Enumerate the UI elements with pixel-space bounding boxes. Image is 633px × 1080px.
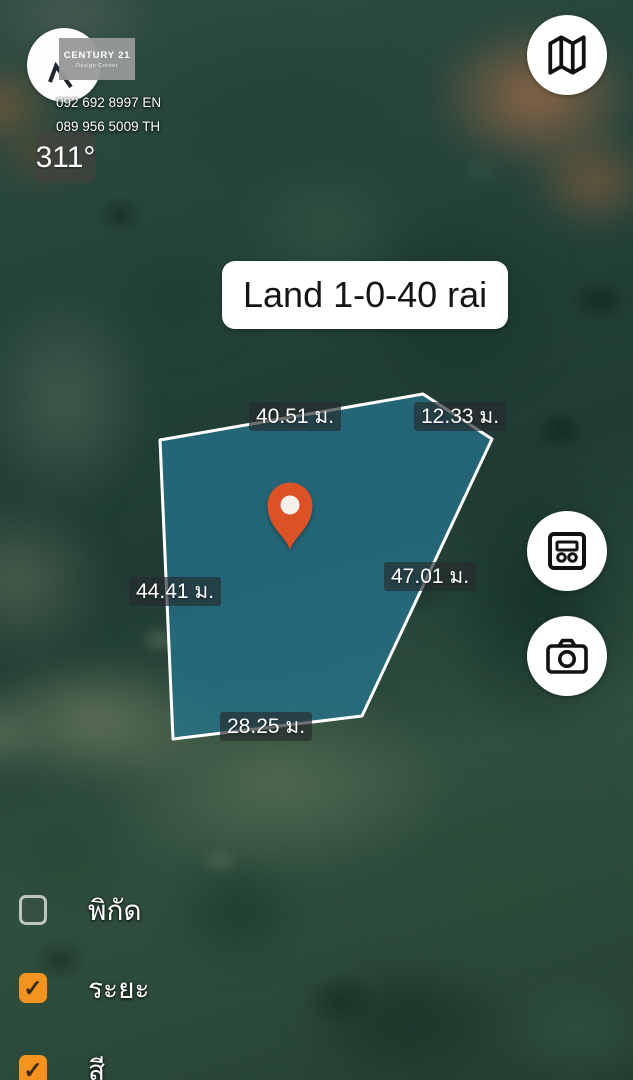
folded-map-icon xyxy=(544,32,590,78)
measurement-right: 47.01 ม. xyxy=(384,562,476,591)
century21-logo: CENTURY 21 Design Corner xyxy=(59,38,135,80)
measurement-left: 44.41 ม. xyxy=(129,577,221,606)
color-label: สี xyxy=(88,1054,105,1080)
toggle-row-color[interactable]: ✓ สี xyxy=(0,1055,260,1080)
measurement-top: 40.51 ม. xyxy=(249,402,341,431)
distance-checkbox[interactable]: ✓ xyxy=(19,973,47,1003)
measurement-top-right: 12.33 ม. xyxy=(414,402,506,431)
toggle-row-coordinates[interactable]: พิกัด xyxy=(0,895,260,931)
camera-button[interactable] xyxy=(527,616,607,696)
compass-heading-readout[interactable]: 311° xyxy=(35,132,96,183)
coordinates-checkbox[interactable] xyxy=(19,895,47,925)
toggle-row-distance[interactable]: ✓ ระยะ xyxy=(0,973,260,1009)
logo-subtitle: Design Corner xyxy=(76,63,118,69)
logo-title: CENTURY 21 xyxy=(64,50,131,61)
plot-details-button[interactable] xyxy=(527,511,607,591)
color-checkbox[interactable]: ✓ xyxy=(19,1055,47,1080)
check-icon: ✓ xyxy=(23,1059,42,1080)
measurement-bottom: 28.25 ม. xyxy=(220,712,312,741)
coordinates-label: พิกัด xyxy=(88,894,142,928)
detail-card-icon xyxy=(545,529,589,573)
check-icon: ✓ xyxy=(23,977,42,1000)
location-pin-icon[interactable] xyxy=(262,478,318,554)
map-type-button[interactable] xyxy=(527,15,607,95)
land-title-label[interactable]: Land 1-0-40 rai xyxy=(222,261,508,329)
distance-label: ระยะ xyxy=(88,972,150,1006)
camera-icon xyxy=(544,635,590,677)
phone-number-en: 092 692 8997 EN xyxy=(56,95,161,110)
map-view[interactable]: 40.51 ม. 12.33 ม. 47.01 ม. 44.41 ม. 28.2… xyxy=(0,0,633,1080)
